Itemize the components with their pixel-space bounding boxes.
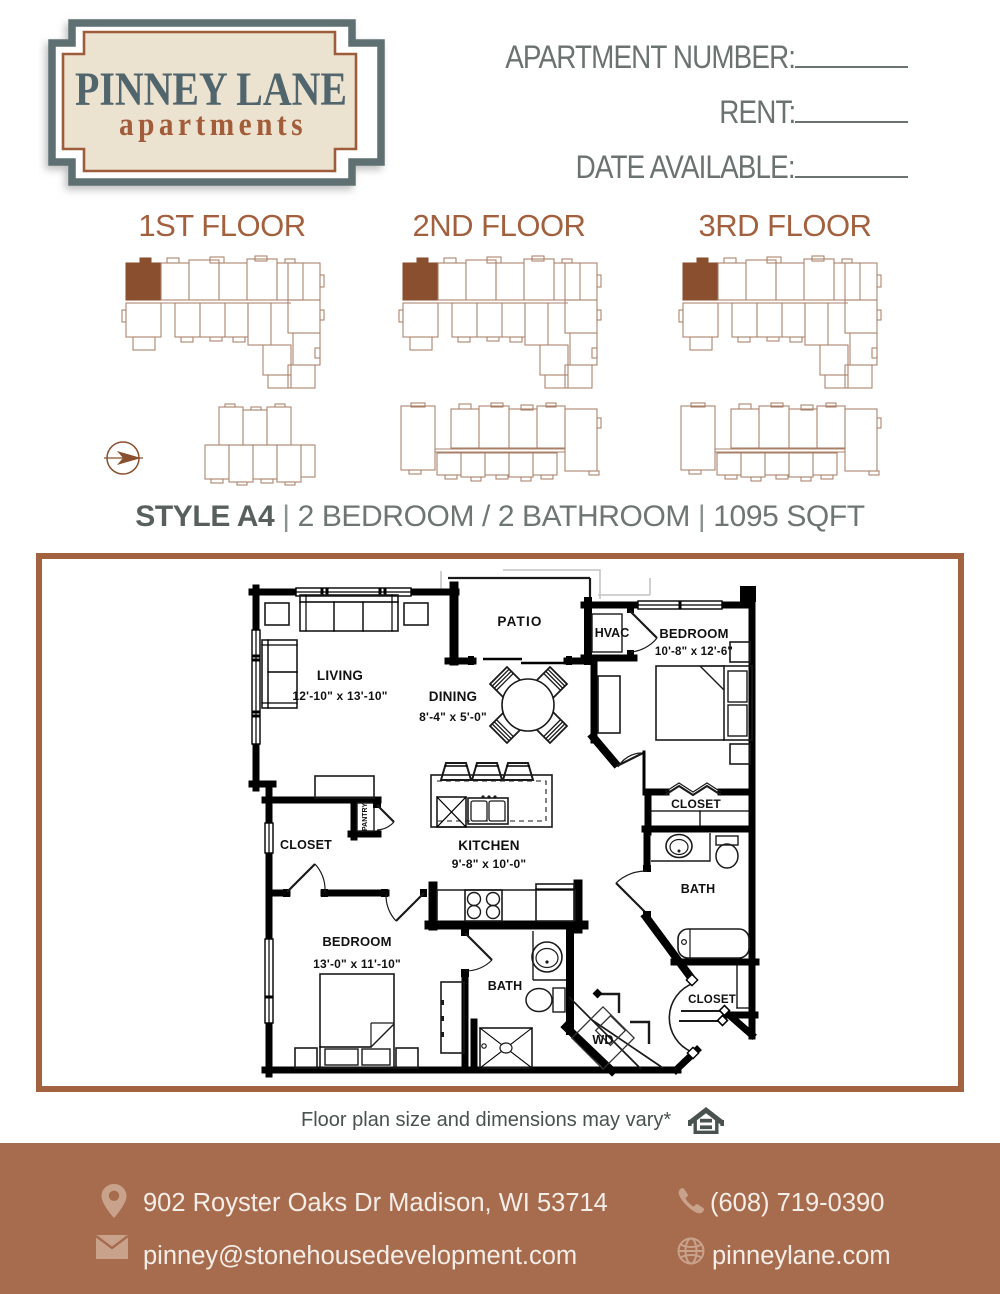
svg-text:PANTRY: PANTRY bbox=[362, 803, 369, 831]
svg-text:KITCHEN: KITCHEN bbox=[458, 838, 519, 853]
svg-text:BEDROOM: BEDROOM bbox=[322, 934, 391, 949]
svg-text:apartments: apartments bbox=[119, 107, 307, 143]
svg-text:CLOSET: CLOSET bbox=[688, 994, 736, 1006]
svg-text:12'-10" x 13'-10": 12'-10" x 13'-10" bbox=[292, 689, 387, 703]
svg-text:10'-8" x 12'-6": 10'-8" x 12'-6" bbox=[655, 646, 733, 658]
svg-text:13'-0" x 11'-10": 13'-0" x 11'-10" bbox=[313, 957, 401, 971]
svg-text:CLOSET: CLOSET bbox=[280, 838, 332, 852]
svg-text:BATH: BATH bbox=[488, 979, 523, 993]
svg-text:BEDROOM: BEDROOM bbox=[659, 626, 728, 641]
svg-text:9'-8" x 10'-0": 9'-8" x 10'-0" bbox=[452, 857, 527, 871]
svg-text:PATIO: PATIO bbox=[497, 614, 542, 629]
svg-text:BATH: BATH bbox=[681, 882, 716, 896]
svg-text:WD: WD bbox=[592, 1033, 613, 1047]
svg-text:HVAC: HVAC bbox=[595, 626, 630, 640]
svg-text:CLOSET: CLOSET bbox=[671, 797, 721, 811]
svg-text:8'-4" x 5'-0": 8'-4" x 5'-0" bbox=[419, 710, 487, 724]
svg-text:DINING: DINING bbox=[429, 689, 477, 704]
svg-text:LIVING: LIVING bbox=[317, 668, 363, 683]
